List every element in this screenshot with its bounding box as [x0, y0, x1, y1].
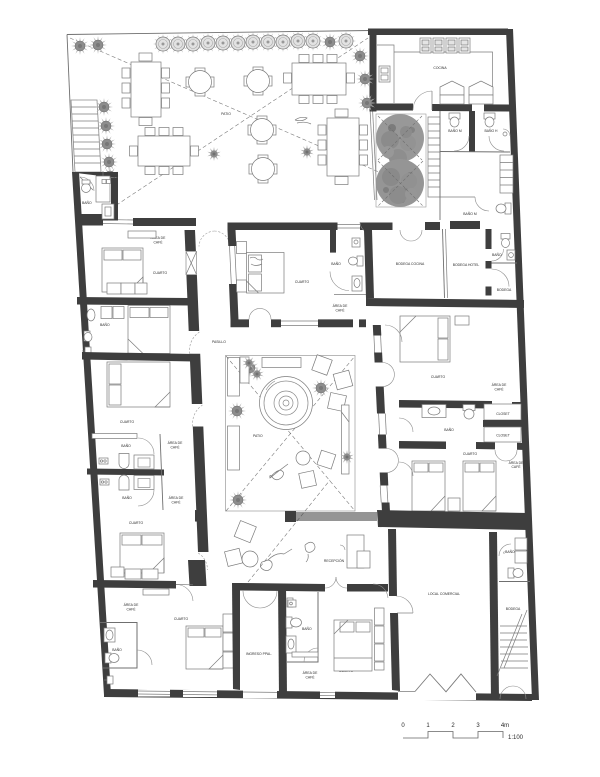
- svg-text:PATIO: PATIO: [221, 112, 231, 116]
- svg-text:BAÑO M: BAÑO M: [448, 128, 462, 133]
- svg-text:BAÑO: BAÑO: [100, 322, 110, 327]
- svg-text:ÁREA DE: ÁREA DE: [124, 603, 139, 607]
- svg-text:4m: 4m: [501, 723, 509, 729]
- svg-text:BAÑO: BAÑO: [112, 647, 122, 652]
- svg-text:CAFÉ: CAFÉ: [335, 308, 345, 313]
- svg-text:CAFÉ: CAFÉ: [126, 607, 136, 612]
- svg-text:BAÑO: BAÑO: [82, 200, 92, 205]
- svg-text:BAÑO M: BAÑO M: [463, 211, 477, 216]
- svg-text:CAFÉ: CAFÉ: [170, 445, 180, 450]
- svg-text:ÁREA DE: ÁREA DE: [168, 441, 183, 445]
- svg-text:INGRESO PPAL.: INGRESO PPAL.: [246, 652, 272, 656]
- svg-text:ÁREA DE: ÁREA DE: [303, 671, 318, 675]
- svg-text:BAÑO: BAÑO: [302, 626, 312, 631]
- svg-text:BAÑO: BAÑO: [492, 252, 502, 257]
- svg-text:CLOSET: CLOSET: [496, 434, 510, 438]
- svg-text:BAÑO: BAÑO: [121, 443, 131, 448]
- svg-text:CAFÉ: CAFÉ: [494, 387, 504, 392]
- svg-text:CAFÉ: CAFÉ: [153, 240, 163, 245]
- svg-text:CUARTO: CUARTO: [431, 375, 446, 379]
- svg-text:ÁREA DE: ÁREA DE: [333, 304, 348, 308]
- svg-text:ÁREA DE: ÁREA DE: [169, 496, 184, 500]
- svg-text:CUARTO: CUARTO: [295, 280, 310, 284]
- svg-text:¿BAÑO: ¿BAÑO: [503, 549, 515, 554]
- svg-text:CAFÉ: CAFÉ: [171, 500, 181, 505]
- svg-text:PASILLO: PASILLO: [212, 340, 226, 344]
- svg-text:BAÑO: BAÑO: [444, 427, 454, 432]
- svg-text:CUARTO: CUARTO: [120, 420, 135, 424]
- svg-text:ÁREA DE: ÁREA DE: [492, 383, 507, 387]
- svg-text:BAÑO H: BAÑO H: [485, 128, 499, 133]
- svg-text:BODEGA: BODEGA: [506, 607, 521, 611]
- svg-text:CAFÉ: CAFÉ: [305, 675, 315, 680]
- svg-text:CUARTO: CUARTO: [129, 521, 144, 525]
- svg-text:CUARTO: CUARTO: [174, 617, 189, 621]
- svg-text:CAFÉ: CAFÉ: [511, 464, 521, 469]
- svg-text:BAÑO: BAÑO: [331, 261, 341, 266]
- svg-text:COCINA: COCINA: [433, 66, 447, 70]
- svg-text:1:100: 1:100: [508, 735, 524, 741]
- svg-text:BODEGA HOTEL: BODEGA HOTEL: [453, 263, 480, 267]
- svg-text:CUARTO: CUARTO: [153, 271, 168, 275]
- svg-text:PATIO: PATIO: [253, 434, 263, 438]
- svg-text:BODEGA: BODEGA: [497, 288, 512, 292]
- svg-text:BODEGA COCINA: BODEGA COCINA: [396, 262, 425, 266]
- svg-text:CUARTO: CUARTO: [463, 452, 478, 456]
- svg-text:BAÑO: BAÑO: [122, 495, 132, 500]
- svg-text:RECEPCIÓN: RECEPCIÓN: [324, 558, 345, 563]
- svg-text:CLOSET: CLOSET: [496, 412, 510, 416]
- svg-text:LOCAL COMERCIAL: LOCAL COMERCIAL: [428, 592, 460, 596]
